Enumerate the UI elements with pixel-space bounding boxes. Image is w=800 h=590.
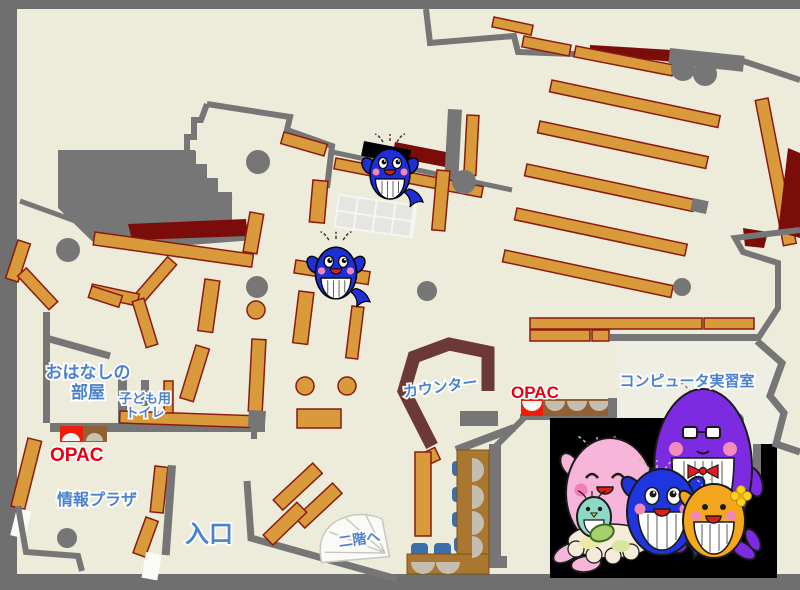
wall-segment <box>489 444 501 562</box>
kids-toilet-label-2: トイレ <box>125 405 164 420</box>
pillar <box>673 278 691 296</box>
pillar <box>452 170 476 194</box>
wall-segment <box>489 556 507 568</box>
info-plaza-label: 情報プラザ <box>57 490 137 509</box>
wall-block <box>248 410 266 428</box>
story-room-label-1: おはなしの <box>46 363 131 382</box>
counter-desk <box>460 411 498 426</box>
story-room-label-2: 部屋 <box>71 382 105 402</box>
opac-left-terminal <box>60 426 107 442</box>
mid-shelf-row <box>530 318 757 341</box>
pillar <box>671 57 695 81</box>
library-floor-map: おはなしの 部屋 子ども用 トイレ OPAC 情報プラザ 入口 カウンター OP… <box>0 0 800 590</box>
pillar <box>246 150 270 174</box>
pillar <box>56 238 80 262</box>
pillar <box>246 276 268 298</box>
opac-right-label: OPAC <box>511 383 559 402</box>
computer-room-label: コンピュータ実習室 <box>619 372 754 390</box>
opac-left-label: OPAC <box>50 445 104 466</box>
floor-map-canvas: おはなしの 部屋 子ども用 トイレ OPAC 情報プラザ 入口 カウンター OP… <box>0 0 800 590</box>
entrance-label: 入口 <box>185 521 233 548</box>
wall-stub <box>251 427 257 439</box>
kids-toilet-label-1: 子ども用 <box>119 391 171 406</box>
bookshelf <box>464 115 479 176</box>
pillar <box>417 281 437 301</box>
pillar <box>693 62 717 86</box>
